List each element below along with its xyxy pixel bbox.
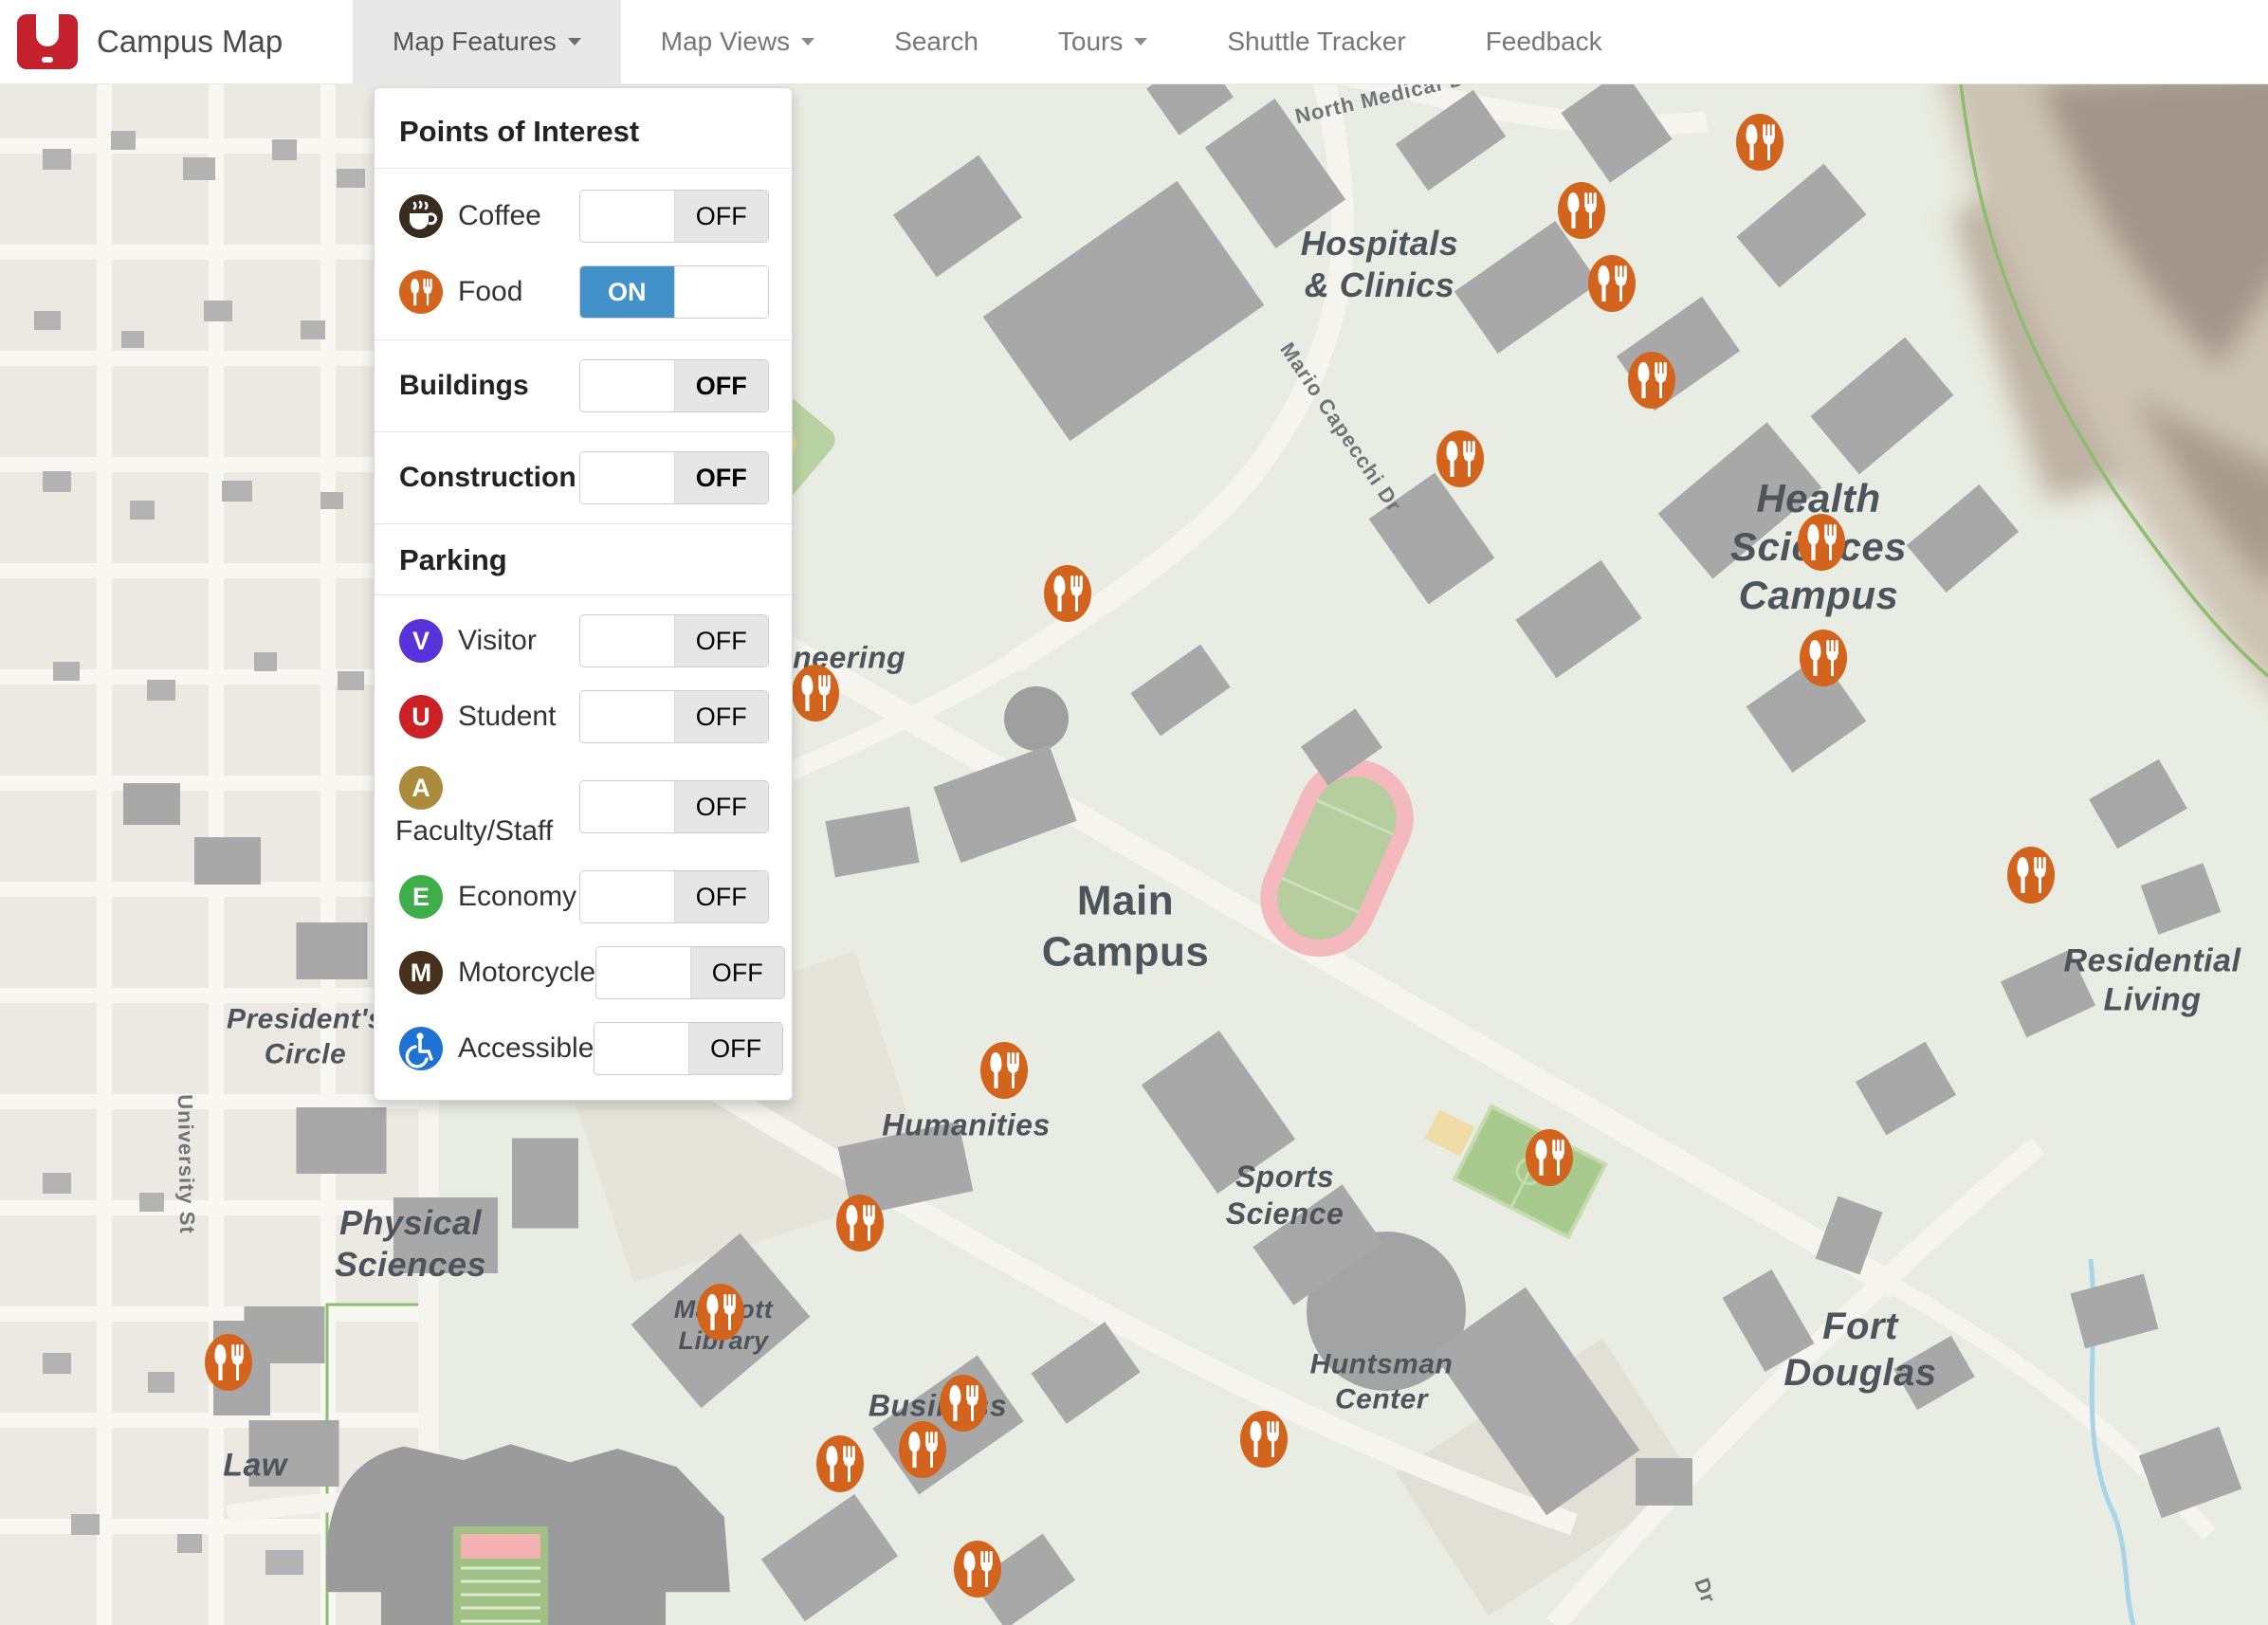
building [338, 671, 364, 690]
construction-label: Construction [399, 462, 576, 494]
toggle-state: OFF [675, 781, 769, 832]
nav-menu: Map Features Map Views Search Tours Shut… [353, 0, 1642, 83]
app-title: Campus Map [97, 24, 283, 60]
building [301, 320, 325, 339]
building [320, 492, 343, 509]
building [893, 155, 1022, 278]
student-parking-icon: U [399, 695, 443, 739]
building [337, 169, 365, 188]
construction-toggle[interactable]: OFF [579, 451, 769, 504]
food-marker[interactable] [1525, 1128, 1574, 1187]
chevron-down-icon [801, 38, 814, 46]
faculty-row: A Faculty/Staff OFF [375, 755, 792, 859]
building [121, 331, 144, 348]
toggle-state: OFF [675, 615, 769, 666]
building [2141, 863, 2222, 935]
toggle-handle [594, 1023, 689, 1074]
economy-label: Economy [458, 881, 576, 913]
map-label-main-campus: MainCampus [1042, 875, 1210, 977]
toggle-handle [580, 452, 675, 503]
building [1856, 1042, 1956, 1136]
toggle-state: OFF [675, 871, 769, 922]
food-marker-icon [1797, 513, 1846, 572]
building [43, 471, 71, 492]
economy-toggle[interactable]: OFF [579, 870, 769, 923]
buildings-row: Buildings OFF [375, 340, 792, 431]
nav-item-tours[interactable]: Tours [1018, 0, 1187, 83]
building [148, 1372, 174, 1393]
map-label-physical-sciences: PhysicalSciences [335, 1202, 486, 1286]
map-label-fort-douglas: FortDouglas [1783, 1304, 1936, 1397]
building [147, 680, 175, 701]
coffee-label: Coffee [458, 200, 541, 232]
building [272, 139, 297, 160]
visitor-toggle[interactable]: OFF [579, 614, 769, 667]
building [512, 1139, 578, 1229]
nav-item-label: Map Features [393, 27, 557, 57]
coffee-row: Coffee OFF [375, 169, 792, 254]
nav-item-label: Feedback [1486, 27, 1602, 57]
foothills-terrain [1934, 83, 2268, 747]
food-marker[interactable] [2006, 846, 2056, 904]
faculty-label: Faculty/Staff [395, 815, 553, 848]
food-marker-icon [1557, 181, 1606, 240]
food-marker-icon [979, 1041, 1029, 1100]
building [983, 181, 1265, 441]
map-label-huntsman-center: HuntsmanCenter [1310, 1347, 1454, 1416]
building [123, 783, 180, 825]
food-marker[interactable] [979, 1041, 1029, 1100]
building [183, 157, 215, 180]
toggle-handle [580, 615, 675, 666]
toggle-handle [596, 947, 691, 998]
food-marker[interactable] [953, 1540, 1002, 1598]
motorcycle-row: M Motorcycle OFF [375, 935, 792, 1011]
nav-item-map-views[interactable]: Map Views [621, 0, 854, 83]
map-label-residential-living: ResidentialLiving [2064, 942, 2241, 1021]
building [71, 1514, 100, 1535]
faculty-toggle[interactable]: OFF [579, 780, 769, 833]
building [204, 301, 232, 321]
building [43, 1173, 71, 1194]
food-marker[interactable] [898, 1420, 947, 1479]
buildings-label: Buildings [399, 370, 529, 402]
food-marker-icon [2006, 846, 2056, 904]
map-features-dropdown: Points of Interest Coffee OFF [374, 87, 793, 1101]
building [265, 1550, 303, 1575]
nav-item-label: Shuttle Tracker [1227, 27, 1405, 57]
toggle-state: OFF [689, 1023, 783, 1074]
building [2071, 1274, 2159, 1349]
toggle-state: OFF [675, 452, 769, 503]
building [297, 1107, 387, 1174]
accessible-parking-icon [399, 1027, 443, 1070]
toggle-handle [580, 691, 675, 742]
food-marker[interactable] [1557, 181, 1606, 240]
coffee-icon [399, 194, 443, 238]
food-marker-icon [898, 1420, 947, 1479]
map-label-presidents-circle: President'sCircle [227, 1002, 384, 1071]
food-icon [399, 270, 443, 314]
toggle-state: ON [580, 266, 674, 318]
visitor-label: Visitor [458, 625, 537, 657]
student-label: Student [458, 701, 556, 733]
food-marker-icon [1043, 564, 1092, 623]
visitor-row: V Visitor OFF [375, 595, 792, 679]
food-row: Food ON [375, 254, 792, 339]
toggle-handle [580, 360, 675, 411]
food-marker[interactable] [815, 1434, 865, 1493]
nav-item-feedback[interactable]: Feedback [1446, 0, 1642, 83]
food-marker[interactable] [1797, 513, 1846, 572]
building [177, 1534, 202, 1553]
building [43, 1353, 71, 1374]
coffee-toggle[interactable]: OFF [579, 190, 769, 243]
nav-item-map-features[interactable]: Map Features [353, 0, 621, 83]
nav-item-search[interactable]: Search [854, 0, 1018, 83]
building [933, 745, 1076, 863]
food-marker[interactable] [791, 664, 840, 722]
building [1454, 221, 1599, 354]
nav-item-label: Map Views [661, 27, 790, 57]
buildings-toggle[interactable]: OFF [579, 359, 769, 412]
toggle-state: OFF [675, 691, 769, 742]
construction-row: Construction OFF [375, 432, 792, 523]
food-marker[interactable] [835, 1194, 885, 1252]
building [130, 501, 155, 520]
building [194, 837, 261, 885]
food-marker-icon [953, 1540, 1002, 1598]
motorcycle-label: Motorcycle [458, 957, 595, 989]
food-marker[interactable] [1587, 254, 1637, 313]
accessible-row: Accessible OFF [375, 1011, 792, 1086]
food-marker[interactable] [1799, 629, 1848, 687]
food-marker-icon [204, 1333, 253, 1392]
food-marker[interactable] [1436, 429, 1485, 488]
accessible-label: Accessible [458, 1032, 594, 1065]
building [1636, 1458, 1692, 1506]
food-marker-icon [791, 664, 840, 722]
street-university-st: University St [173, 1094, 200, 1234]
student-row: U Student OFF [375, 679, 792, 755]
building [1907, 484, 2019, 593]
food-marker-icon [835, 1194, 885, 1252]
university-logo-icon [17, 14, 78, 69]
building [222, 481, 252, 502]
building [825, 807, 919, 878]
building [2089, 759, 2187, 849]
student-toggle[interactable]: OFF [579, 690, 769, 743]
economy-row: E Economy OFF [375, 859, 792, 935]
map-label-sports-science: SportsScience [1226, 1159, 1344, 1232]
top-navbar: Campus Map Map Features Map Views Search… [0, 0, 2268, 84]
building [139, 1193, 164, 1212]
building [1810, 338, 1953, 475]
food-marker-icon [1436, 429, 1485, 488]
toggle-state: OFF [691, 947, 785, 998]
nav-item-label: Tours [1058, 27, 1123, 57]
food-marker-icon [696, 1283, 745, 1342]
food-marker-icon [1587, 254, 1637, 313]
map-label-hospitals-clinics: Hospitals& Clinics [1301, 223, 1459, 306]
circle-building [1004, 686, 1069, 751]
building [2139, 1427, 2242, 1519]
nav-item-label: Search [894, 27, 979, 57]
toggle-handle [674, 266, 769, 318]
brand[interactable]: Campus Map [0, 0, 353, 83]
chevron-down-icon [1134, 38, 1147, 46]
parking-section-header: Parking [375, 524, 792, 594]
toggle-handle [580, 191, 675, 242]
building [761, 1494, 898, 1621]
food-label: Food [458, 276, 522, 308]
food-marker[interactable] [1735, 113, 1784, 172]
building [111, 131, 136, 150]
toggle-handle [580, 871, 675, 922]
building [297, 922, 368, 979]
food-marker[interactable] [1239, 1410, 1289, 1469]
building [1515, 560, 1641, 679]
chevron-down-icon [568, 38, 581, 46]
toggle-state: OFF [675, 191, 769, 242]
building [1130, 645, 1230, 737]
nav-item-shuttle-tracker[interactable]: Shuttle Tracker [1187, 0, 1445, 83]
food-marker[interactable] [696, 1283, 745, 1342]
poi-section-header: Points of Interest [375, 94, 792, 168]
food-marker-icon [1799, 629, 1848, 687]
food-marker[interactable] [1627, 351, 1676, 410]
accessible-toggle[interactable]: OFF [594, 1022, 783, 1075]
visitor-parking-icon: V [399, 619, 443, 663]
building [34, 311, 61, 330]
food-marker-icon [1525, 1128, 1574, 1187]
food-marker[interactable] [204, 1333, 253, 1392]
faculty-parking-icon: A [399, 766, 443, 810]
food-marker[interactable] [1043, 564, 1092, 623]
building [1561, 83, 1672, 183]
food-marker-icon [1627, 351, 1676, 410]
building [254, 652, 277, 671]
food-marker-icon [1735, 113, 1784, 172]
motorcycle-parking-icon: M [399, 951, 443, 995]
toggle-handle [580, 781, 675, 832]
building [53, 662, 80, 681]
economy-parking-icon: E [399, 875, 443, 919]
building [43, 149, 71, 170]
food-marker-icon [815, 1434, 865, 1493]
map-label-humanities: Humanities [882, 1106, 1050, 1143]
tan-building [1425, 1109, 1475, 1156]
motorcycle-toggle[interactable]: OFF [595, 946, 785, 999]
food-toggle[interactable]: ON [579, 265, 769, 319]
campus-map-canvas[interactable]: Hospitals& ClinicsHealthSciencesCampusMa… [0, 83, 2268, 1625]
stadium [326, 1444, 730, 1625]
food-marker-icon [1239, 1410, 1289, 1469]
building [1146, 83, 1234, 136]
map-label-law: Law [223, 1446, 287, 1485]
building [1737, 164, 1867, 288]
toggle-state: OFF [675, 360, 769, 411]
